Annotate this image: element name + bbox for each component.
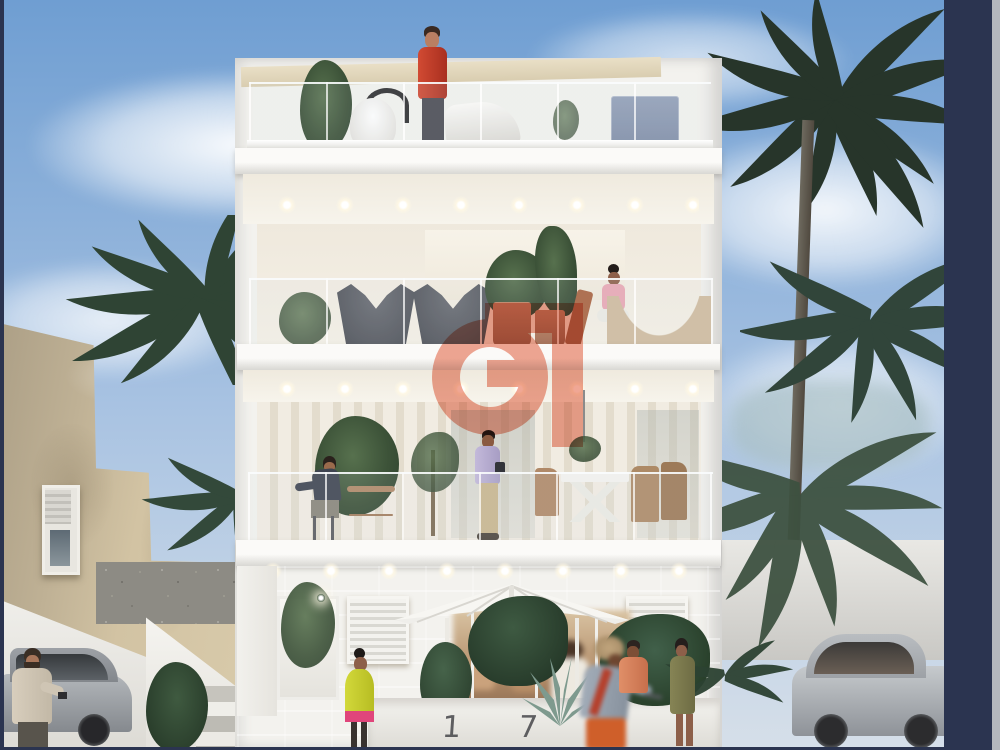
olive-dress bbox=[670, 656, 695, 714]
woman-olive-dress bbox=[662, 638, 706, 750]
frame-left-border bbox=[0, 0, 4, 750]
leg bbox=[351, 722, 357, 748]
orange-skirt bbox=[586, 718, 626, 750]
wall-light-sparkle bbox=[317, 594, 325, 602]
balcony-slab bbox=[235, 148, 722, 174]
yellow-tunic bbox=[345, 669, 374, 715]
phone bbox=[58, 692, 67, 699]
leg bbox=[686, 714, 693, 746]
silver-hatchback bbox=[792, 634, 952, 750]
trousers bbox=[18, 722, 48, 750]
man-coral-shirt bbox=[612, 640, 654, 696]
frame-right-edge-strip bbox=[992, 0, 1000, 750]
watermark-letter-g: G bbox=[425, 285, 590, 455]
car-wheel bbox=[904, 714, 938, 748]
car-wheel bbox=[814, 714, 848, 748]
old-house-window bbox=[42, 485, 80, 575]
white-corner-wall bbox=[237, 566, 277, 716]
coral-shirt bbox=[619, 657, 648, 693]
fern-pot-left bbox=[146, 662, 208, 750]
roof-glass-balustrade bbox=[249, 82, 711, 144]
frame-right-bar bbox=[944, 0, 992, 750]
architectural-rendering: 1 7 bbox=[0, 0, 1000, 750]
car-window bbox=[814, 642, 914, 674]
man-beside-car bbox=[6, 648, 66, 750]
window-pane bbox=[48, 528, 72, 568]
woman-yellow-tunic bbox=[334, 648, 384, 750]
car-wheel bbox=[78, 714, 110, 746]
lower-glass-balustrade bbox=[248, 472, 713, 542]
window-shutter bbox=[45, 490, 71, 524]
rubble-stone-wall bbox=[96, 562, 238, 624]
leg bbox=[361, 722, 367, 748]
head bbox=[425, 32, 439, 48]
shirt bbox=[12, 668, 52, 724]
pink-hem bbox=[345, 711, 374, 722]
downlight-row bbox=[259, 196, 699, 214]
leg bbox=[676, 714, 683, 746]
